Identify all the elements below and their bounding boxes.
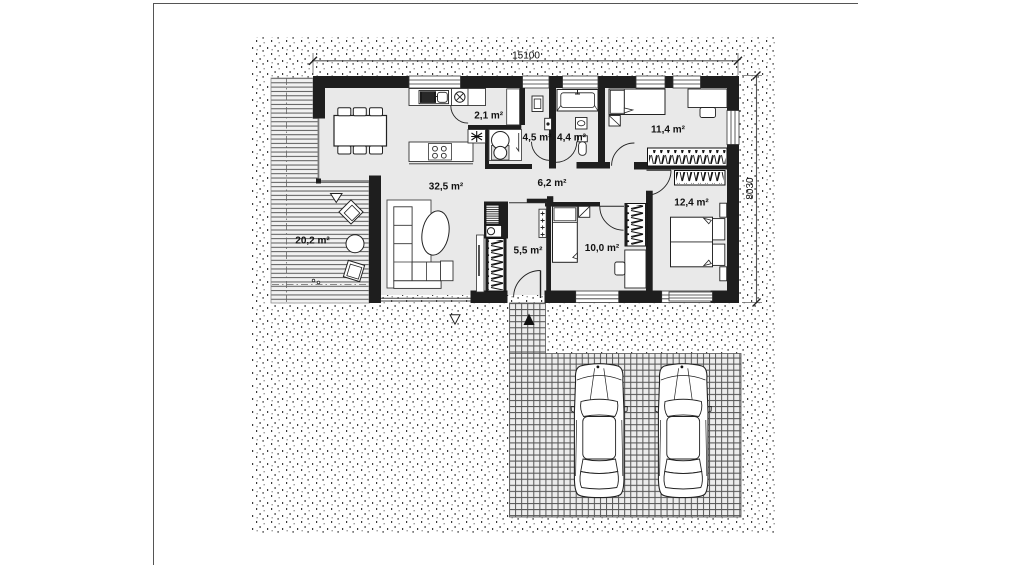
svg-text:12,4 m²: 12,4 m² <box>674 198 709 209</box>
svg-text:8030: 8030 <box>745 177 756 200</box>
svg-text:11,4 m²: 11,4 m² <box>651 125 686 136</box>
svg-text:15100: 15100 <box>512 51 540 62</box>
svg-text:2,1 m²: 2,1 m² <box>474 111 504 122</box>
svg-text:4,5 m²: 4,5 m² <box>523 133 553 144</box>
svg-text:6,2 m²: 6,2 m² <box>538 178 568 189</box>
svg-text:4,4 m²: 4,4 m² <box>557 133 587 144</box>
svg-text:10,0 m²: 10,0 m² <box>585 243 620 254</box>
svg-text:20,2 m²: 20,2 m² <box>295 236 330 247</box>
svg-text:32,5 m²: 32,5 m² <box>429 182 464 193</box>
svg-text:5,5 m²: 5,5 m² <box>514 246 544 257</box>
